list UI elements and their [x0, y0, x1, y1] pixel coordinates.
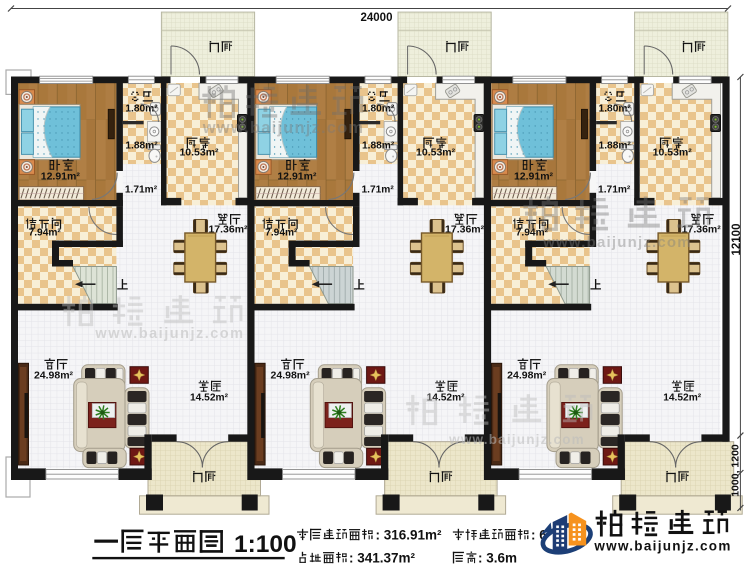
- svg-text:24.98m²: 24.98m²: [271, 370, 311, 382]
- svg-text:10.53m²: 10.53m²: [416, 146, 456, 158]
- svg-text:24000: 24000: [361, 12, 393, 24]
- svg-text:1.88m²: 1.88m²: [362, 141, 395, 152]
- svg-text:12100: 12100: [731, 224, 743, 256]
- svg-text:14.52m²: 14.52m²: [190, 392, 229, 403]
- svg-text:www.baijunjz.com: www.baijunjz.com: [202, 119, 365, 137]
- svg-text:10.53m²: 10.53m²: [653, 146, 693, 158]
- svg-text:24.98m²: 24.98m²: [34, 370, 74, 382]
- svg-text:10.53m²: 10.53m²: [179, 146, 219, 158]
- svg-text:12.91m²: 12.91m²: [277, 170, 317, 182]
- svg-text:1:100: 1:100: [234, 531, 297, 558]
- svg-text:7.94m²: 7.94m²: [29, 228, 62, 239]
- svg-text:: 341.37m²: : 341.37m²: [349, 551, 416, 566]
- svg-text:www.baijunjz.com: www.baijunjz.com: [94, 326, 244, 342]
- svg-text:: 316.91m²: : 316.91m²: [376, 528, 443, 543]
- svg-text:1.71m²: 1.71m²: [361, 185, 394, 196]
- svg-text:1.88m²: 1.88m²: [599, 141, 632, 152]
- svg-text:1.71m²: 1.71m²: [598, 185, 631, 196]
- svg-text:14.52m²: 14.52m²: [663, 392, 702, 403]
- svg-text:www.baijunjz.com: www.baijunjz.com: [542, 234, 692, 251]
- svg-text:1.71m²: 1.71m²: [125, 185, 158, 196]
- svg-text:: 3.6m: : 3.6m: [478, 551, 517, 566]
- svg-text:www.baijunjz.com: www.baijunjz.com: [448, 432, 585, 447]
- svg-text:24.98m²: 24.98m²: [507, 370, 547, 382]
- svg-text:1000, 1200: 1000, 1200: [729, 444, 741, 497]
- svg-text:1.88m²: 1.88m²: [125, 141, 158, 152]
- svg-text:12.91m²: 12.91m²: [41, 170, 81, 182]
- svg-text:www.baijunjz.com: www.baijunjz.com: [593, 539, 731, 554]
- svg-text:7.94m²: 7.94m²: [265, 228, 298, 239]
- svg-text:12.91m²: 12.91m²: [514, 170, 554, 182]
